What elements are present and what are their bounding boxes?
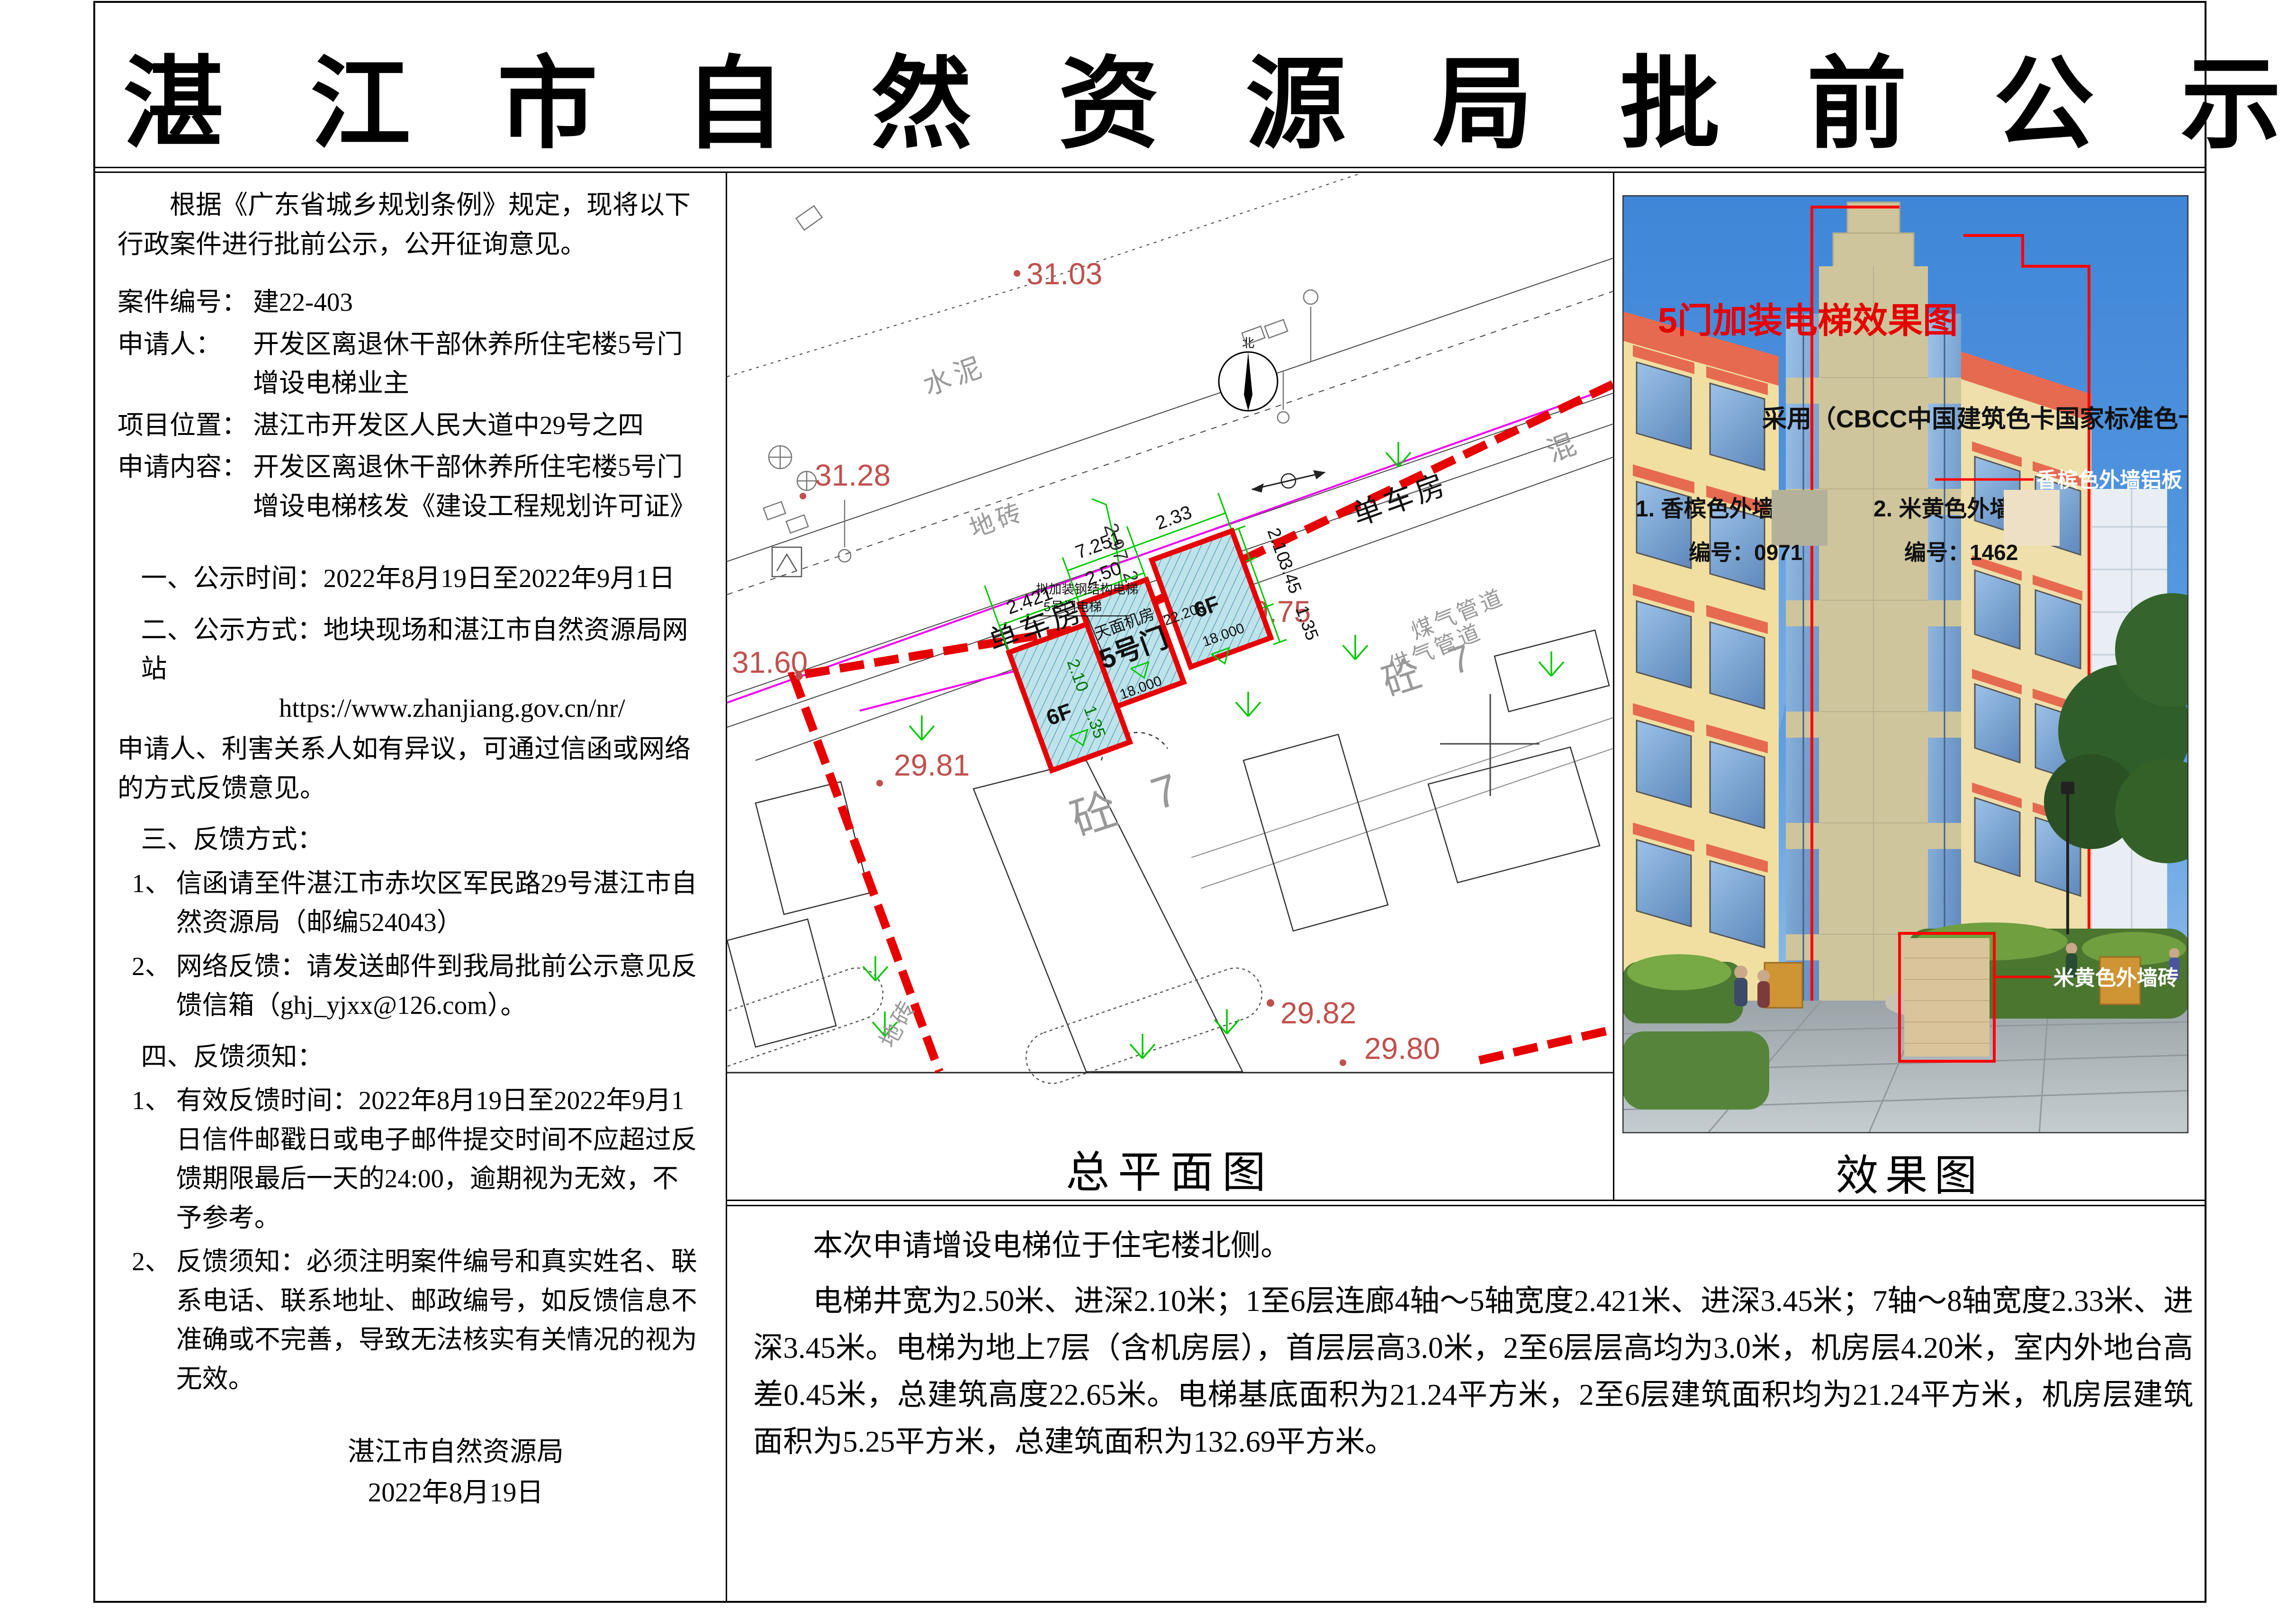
road-direction-arrow [1252, 470, 1325, 492]
svg-text:混: 混 [1543, 428, 1580, 468]
field-value: 建22-403 [253, 283, 709, 322]
summary-section: 本次申请增设电梯位于住宅楼北侧。 电梯井宽为2.50米、进深2.10米；1至6层… [753, 1222, 2193, 1474]
rendering-image: 米黄色外墙砖 香槟色外墙铝板 5门加装电梯效果图 采用（CBCC中国建筑色卡国家… [1622, 195, 2188, 1133]
item-text: 反馈须知：必须注明案件编号和真实姓名、联系电话、联系地址、邮政编号，如反馈信息不… [176, 1242, 709, 1399]
svg-text:地砖: 地砖 [875, 995, 922, 1052]
rendering-caption: 效果图 [1613, 1141, 2206, 1202]
rendering-subtitle: 采用（CBCC中国建筑色卡国家标准色卡0971色） [1762, 406, 2188, 433]
svg-text:地砖: 地砖 [966, 498, 1029, 543]
notice-date: 2022年8月19日 [117, 1472, 709, 1513]
notice-signature: 湛江市自然资源局 [117, 1432, 709, 1472]
svg-text:香槟色外墙铝板: 香槟色外墙铝板 [2036, 469, 2182, 492]
bottom-section-divider-2 [726, 1205, 2206, 1206]
svg-text:水泥: 水泥 [919, 351, 990, 402]
page-title: 湛 江 市 自 然 资 源 局 批 前 公 示 [123, 23, 2174, 168]
notice-url: https://www.zhanjiang.gov.cn/nr/ [117, 689, 709, 728]
item-text: 有效反馈时间：2022年8月19日至2022年9月1日信件邮戳日或电子邮件提交时… [176, 1081, 709, 1238]
surface-labels: 水泥 水泥 地砖 地砖 混 砼 7 砼 7 煤气管道 供气管道 [875, 351, 1580, 1052]
field-location: 项目位置： 湛江市开发区人民大道中29号之四 [117, 406, 709, 445]
middle-right-divider [1613, 172, 1614, 1201]
field-value: 开发区离退休干部休养所住宅楼5号门增设电梯核发《建设工程规划许可证》 [253, 448, 709, 526]
svg-text:29.80: 29.80 [1364, 1031, 1440, 1066]
notice-item-time: 一、公示时间：2022年8月19日至2022年9月1日 [117, 559, 709, 598]
notice-notes-item-1: 1、 有效反馈时间：2022年8月19日至2022年9月1日信件邮戳日或电子邮件… [117, 1081, 709, 1238]
item-marker: 1、 [117, 1081, 176, 1238]
site-plan-panel: 北 水泥 水泥 地砖 地砖 混 [727, 173, 1613, 1200]
field-label: 申请人： [117, 325, 253, 403]
item-marker: 1、 [117, 864, 176, 942]
item-marker: 2、 [117, 947, 176, 1025]
existing-building [1622, 311, 1779, 1012]
notice-item-objection: 申请人、利害关系人如有异议，可通过信函或网络的方式反馈意见。 [117, 730, 709, 808]
svg-text:31.28: 31.28 [815, 458, 891, 492]
legend-code-1: 编号：0971 [1689, 540, 1802, 565]
field-applicant: 申请人： 开发区离退休干部休养所住宅楼5号门增设电梯业主 [117, 325, 709, 403]
field-label: 案件编号： [117, 283, 253, 322]
field-content: 申请内容： 开发区离退休干部休养所住宅楼5号门增设电梯核发《建设工程规划许可证》 [117, 448, 709, 526]
svg-text:3.45: 3.45 [1274, 557, 1305, 596]
legend-swatch-champagne [1772, 490, 1828, 546]
svg-text:砼 7: 砼 7 [1065, 760, 1197, 846]
notice-text-column: 根据《广东省城乡规划条例》规定，现将以下行政案件进行批前公示，公开征询意见。 案… [117, 186, 709, 1513]
summary-paragraph-1: 本次申请增设电梯位于住宅楼北侧。 [753, 1222, 2193, 1269]
field-label: 申请内容： [117, 448, 253, 526]
item-text: 信函请至件湛江市赤坎区军民路29号湛江市自然资源局（邮编524043） [176, 864, 709, 942]
notice-notes-header: 四、反馈须知： [117, 1038, 709, 1077]
field-case-number: 案件编号： 建22-403 [117, 283, 709, 322]
svg-text:拟加装钢结构电梯: 拟加装钢结构电梯 [1036, 582, 1138, 596]
field-value: 湛江市开发区人民大道中29号之四 [253, 406, 709, 445]
rendering-title: 5门加装电梯效果图 [1658, 301, 1958, 340]
svg-text:29.82: 29.82 [1280, 996, 1356, 1030]
svg-text:单车房: 单车房 [1348, 467, 1453, 532]
item-marker: 2、 [117, 1242, 176, 1399]
notice-feedback-header: 三、反馈方式： [117, 820, 709, 859]
svg-text:31.03: 31.03 [1026, 257, 1102, 291]
building-right-wing [1961, 352, 2091, 1012]
notice-item-method: 二、公示方式：地块现场和湛江市自然资源局网站 [117, 611, 709, 689]
field-label: 项目位置： [117, 406, 253, 445]
notice-notes-item-2: 2、 反馈须知：必须注明案件编号和真实姓名、联系电话、联系地址、邮政编号，如反馈… [117, 1242, 709, 1399]
north-compass-icon: 北 [1219, 336, 1278, 411]
site-plan-caption: 总平面图 [727, 1137, 1613, 1200]
legend-swatch-beige [2004, 490, 2060, 546]
notice-feedback-item-1: 1、 信函请至件湛江市赤坎区军民路29号湛江市自然资源局（邮编524043） [117, 864, 709, 942]
svg-text:29.81: 29.81 [894, 748, 970, 782]
notice-intro: 根据《广东省城乡规划条例》规定，现将以下行政案件进行批前公示，公开征询意见。 [117, 186, 709, 264]
legend-code-2: 编号：1462 [1904, 540, 2018, 565]
item-text: 网络反馈：请发送邮件到我局批前公示意见反馈信箱（ghj_yjxx@126.com… [176, 947, 709, 1025]
field-value: 开发区离退休干部休养所住宅楼5号门增设电梯业主 [253, 325, 709, 403]
svg-text:米黄色外墙砖: 米黄色外墙砖 [2053, 967, 2179, 990]
svg-text:5号门电梯: 5号门电梯 [1044, 600, 1102, 614]
rendering-panel: 米黄色外墙砖 香槟色外墙铝板 5门加装电梯效果图 采用（CBCC中国建筑色卡国家… [1622, 195, 2188, 1133]
summary-paragraph-2: 电梯井宽为2.50米、进深2.10米；1至6层连廊4轴～5轴宽度2.421米、进… [753, 1278, 2193, 1465]
svg-text:2.33: 2.33 [1153, 502, 1195, 534]
notice-feedback-item-2: 2、 网络反馈：请发送邮件到我局批前公示意见反馈信箱（ghj_yjxx@126.… [117, 947, 709, 1025]
site-plan-drawing: 北 水泥 水泥 地砖 地砖 混 [727, 173, 1613, 1200]
